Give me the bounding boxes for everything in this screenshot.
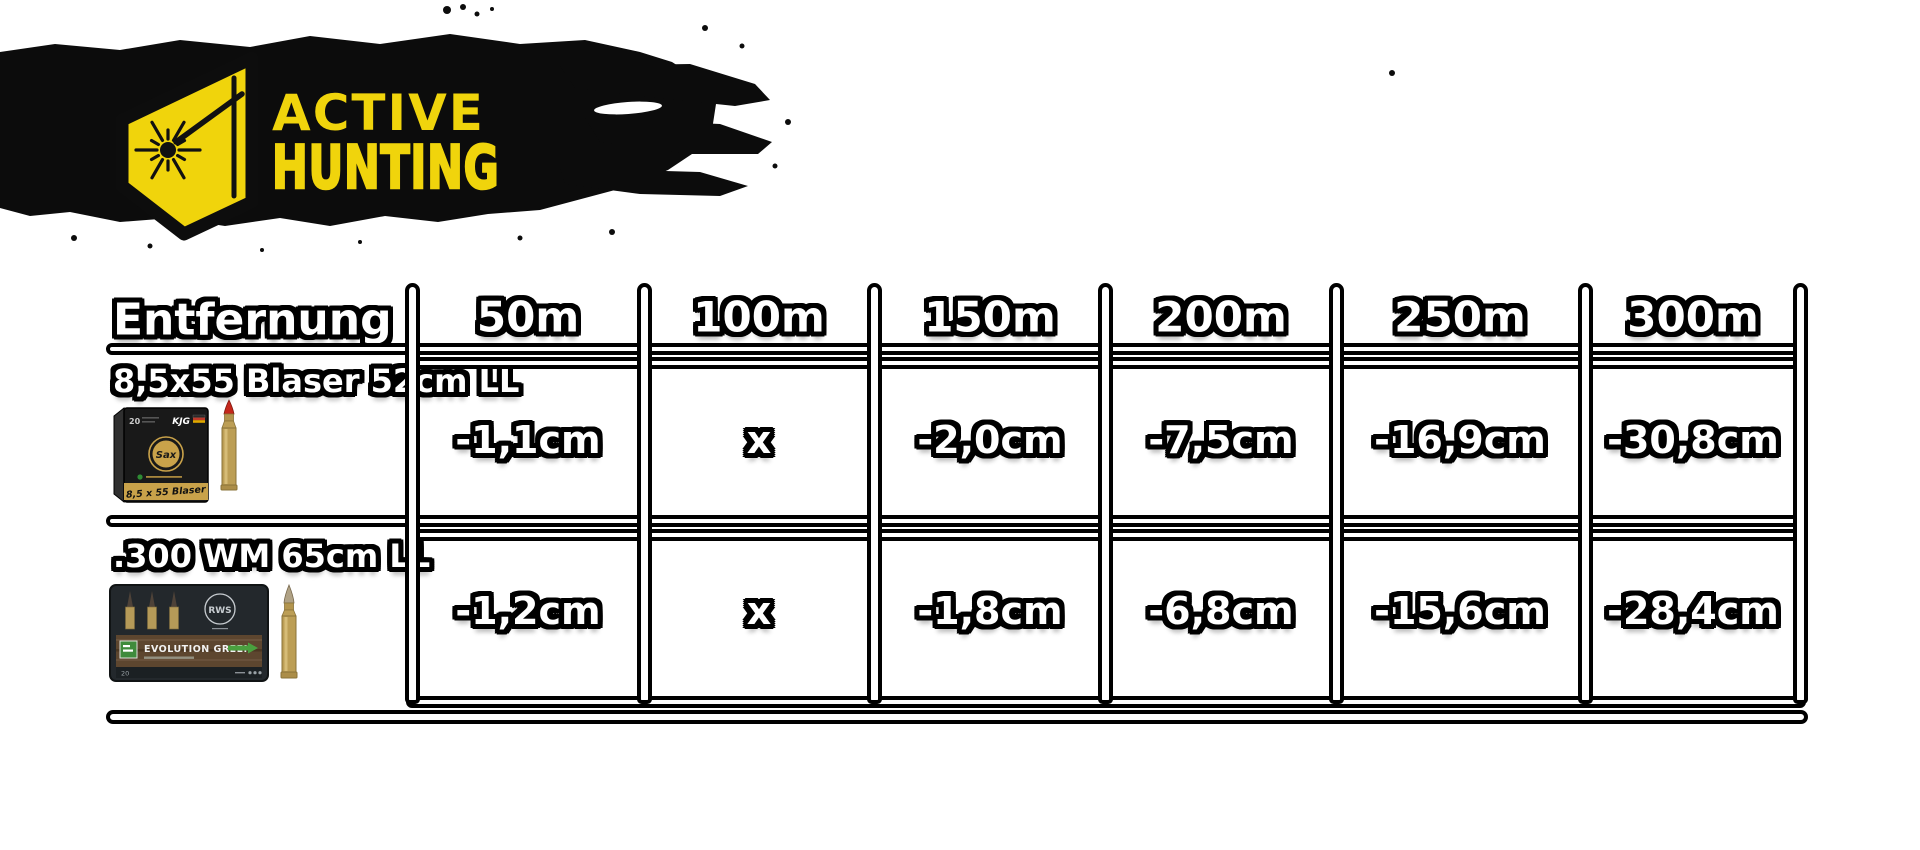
table-hline-bottom-full bbox=[106, 710, 1808, 724]
cartridge-long bbox=[281, 585, 297, 678]
table-vline-4 bbox=[1098, 283, 1113, 704]
box-brand: Sax bbox=[156, 450, 177, 461]
box-count: 20 bbox=[121, 670, 129, 678]
drop-value-cell: -7,5cm bbox=[1148, 418, 1293, 462]
distance-header: 50m bbox=[477, 293, 579, 342]
german-flag-icon bbox=[193, 415, 205, 423]
drop-value-cell: -28,4cm bbox=[1607, 589, 1779, 633]
table-vline-3 bbox=[867, 283, 882, 704]
distance-header: 100m bbox=[693, 293, 824, 342]
drop-value-cell: -15,6cm bbox=[1374, 589, 1546, 633]
drop-value-cell: -30,8cm bbox=[1607, 418, 1779, 462]
distance-header: 300m bbox=[1627, 293, 1758, 342]
table-vline-6 bbox=[1578, 283, 1593, 704]
ballistic-infographic: ACTIVE HUNTING Entfernung 50m 100m 150m … bbox=[0, 0, 1920, 850]
evo-green-logo bbox=[120, 641, 137, 658]
table-vline-7 bbox=[1793, 283, 1808, 704]
distance-header: 150m bbox=[924, 293, 1055, 342]
drop-value-cell: -1,1cm bbox=[455, 418, 600, 462]
table-vline-1 bbox=[405, 283, 420, 704]
table-vline-5 bbox=[1329, 283, 1344, 704]
laser-shield-icon bbox=[106, 38, 274, 243]
box-brand: RWS bbox=[208, 606, 231, 616]
drop-value-cell: -2,0cm bbox=[917, 418, 1062, 462]
brand-word-hunting: HUNTING bbox=[272, 134, 499, 203]
ammo-box-sax-kjg: 20 KJG Sax 8,5 x 55 Blaser bbox=[110, 398, 250, 510]
drop-value-cell: -16,9cm bbox=[1374, 418, 1546, 462]
cartridge-red-tip bbox=[221, 400, 237, 490]
drop-value-cell: -1,8cm bbox=[917, 589, 1062, 633]
box-type: KJG bbox=[172, 417, 190, 427]
distance-header: 250m bbox=[1394, 293, 1525, 342]
ammo-box-rws-evolution-green: RWS EVOLUTION GREEN 20 bbox=[108, 583, 308, 685]
box-count: 20 bbox=[129, 417, 141, 426]
row-label: .300 WM 65cm LL bbox=[113, 537, 430, 575]
drop-value-cell: -1,2cm bbox=[455, 589, 600, 633]
table-hline-row1-bottom-full bbox=[106, 515, 1808, 527]
drop-value-cell: x bbox=[747, 589, 772, 633]
header-label-entfernung: Entfernung bbox=[113, 295, 392, 346]
table-hline-header-full bbox=[106, 343, 1808, 355]
drop-value-cell: -6,8cm bbox=[1148, 589, 1293, 633]
distance-header: 200m bbox=[1155, 293, 1286, 342]
table-vline-2 bbox=[637, 283, 652, 704]
drop-value-cell: x bbox=[747, 418, 772, 462]
